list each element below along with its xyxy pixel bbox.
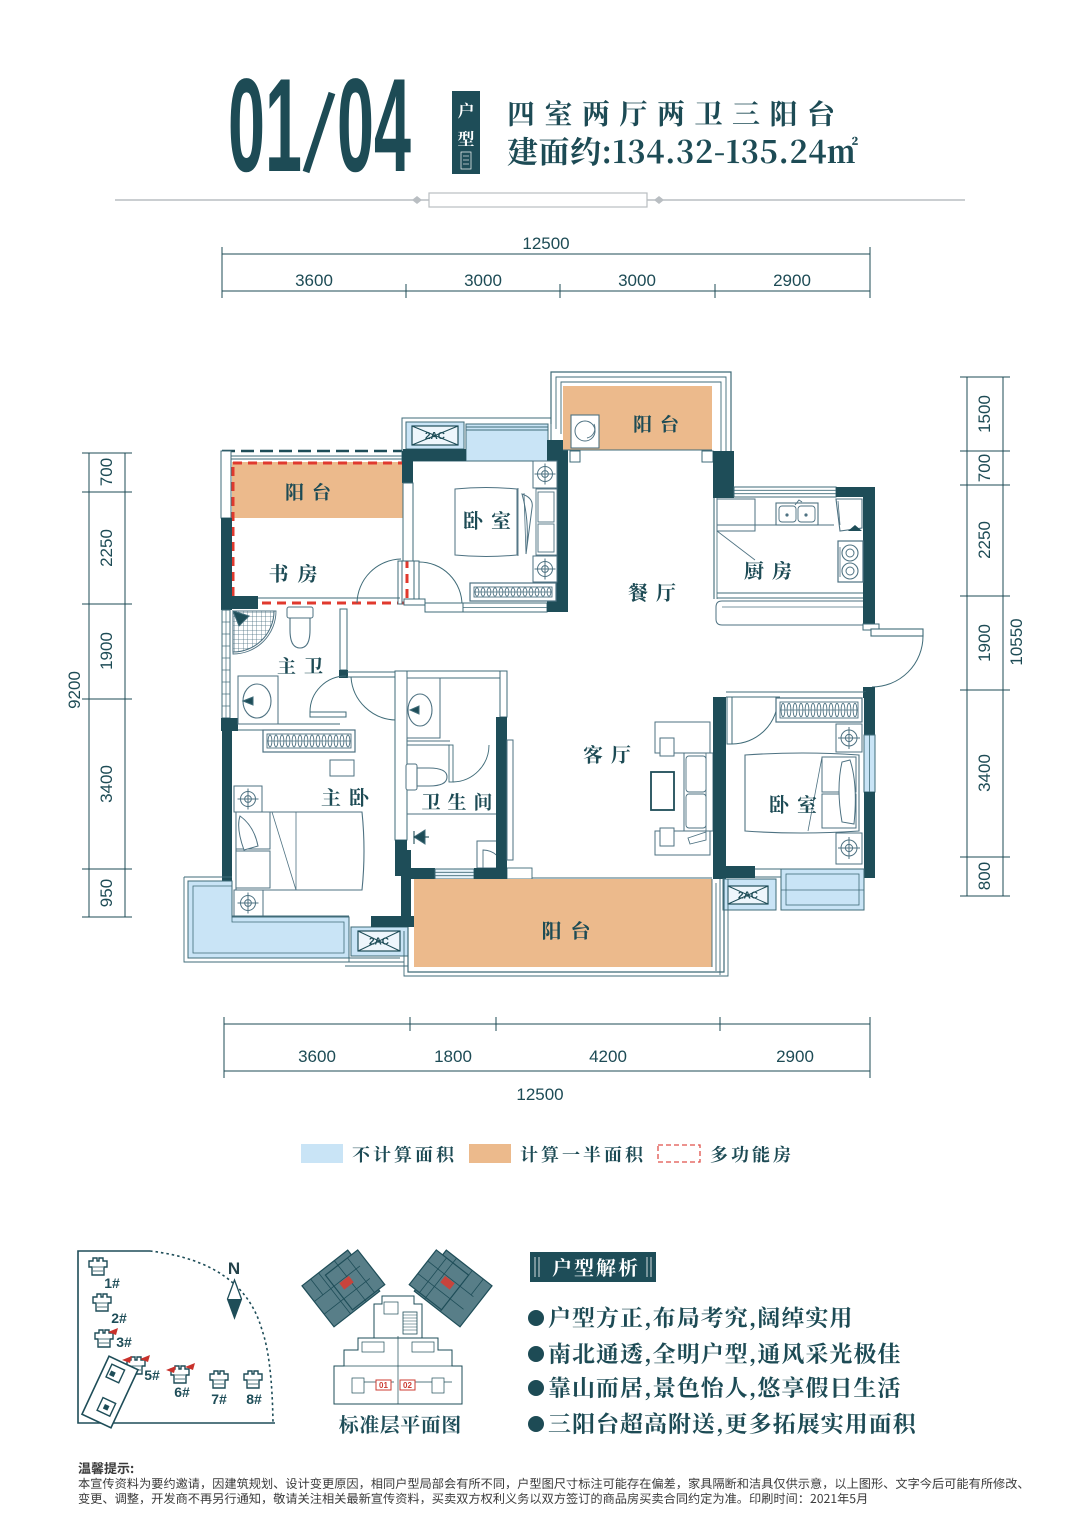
svg-text:950: 950 xyxy=(97,879,116,907)
svg-text:1500: 1500 xyxy=(975,395,994,433)
svg-text:5#: 5# xyxy=(144,1367,160,1383)
svg-text:10550: 10550 xyxy=(1007,618,1026,665)
svg-text:1#: 1# xyxy=(104,1275,120,1291)
svg-text:01: 01 xyxy=(228,52,302,200)
svg-text:700: 700 xyxy=(975,454,994,482)
svg-text:2AC: 2AC xyxy=(738,891,758,902)
svg-text:1900: 1900 xyxy=(97,632,116,670)
svg-text:3#: 3# xyxy=(116,1334,132,1350)
svg-text:3400: 3400 xyxy=(975,754,994,792)
svg-text:3600: 3600 xyxy=(298,1047,336,1066)
svg-text:1800: 1800 xyxy=(434,1047,472,1066)
svg-text:3000: 3000 xyxy=(464,271,502,290)
svg-text:01: 01 xyxy=(379,1381,388,1390)
svg-text:800: 800 xyxy=(975,862,994,890)
svg-text:4200: 4200 xyxy=(589,1047,627,1066)
svg-text:12500: 12500 xyxy=(522,234,569,253)
svg-text:2900: 2900 xyxy=(773,271,811,290)
svg-text:12500: 12500 xyxy=(516,1085,563,1104)
svg-text:7#: 7# xyxy=(211,1391,227,1407)
svg-text:02: 02 xyxy=(403,1381,412,1390)
svg-text:3000: 3000 xyxy=(618,271,656,290)
svg-text:2AC: 2AC xyxy=(369,937,389,948)
svg-text:3600: 3600 xyxy=(295,271,333,290)
svg-text:2250: 2250 xyxy=(975,521,994,559)
svg-text:2AC: 2AC xyxy=(425,431,445,442)
svg-text:700: 700 xyxy=(97,458,116,486)
svg-text:2250: 2250 xyxy=(97,529,116,567)
svg-text:04: 04 xyxy=(337,52,411,200)
svg-text:8#: 8# xyxy=(246,1391,262,1407)
svg-text:1900: 1900 xyxy=(975,624,994,662)
svg-text:6#: 6# xyxy=(174,1384,190,1400)
svg-text:9200: 9200 xyxy=(65,671,84,709)
svg-text:N: N xyxy=(228,1259,240,1278)
svg-text:2900: 2900 xyxy=(776,1047,814,1066)
svg-text:2#: 2# xyxy=(111,1310,127,1326)
svg-text:3400: 3400 xyxy=(97,765,116,803)
